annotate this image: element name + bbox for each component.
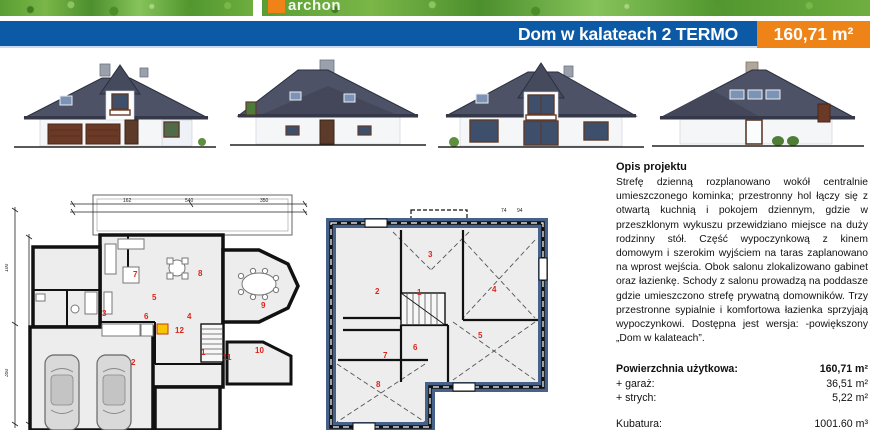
area-badge: 160,71 m² <box>757 21 870 48</box>
room-number: 8 <box>376 380 381 389</box>
floor-plan-attic: 74 94 1 2 3 4 5 6 7 8 <box>313 200 613 430</box>
room-number: 8 <box>198 269 203 278</box>
elevation-front-drawing <box>12 58 218 154</box>
stat-value: 160,71 m² <box>820 362 868 377</box>
room-number: 10 <box>255 346 264 355</box>
area-stats: Powierzchnia użytkowa: 160,71 m² + garaż… <box>616 362 868 431</box>
stat-value: 36,51 m² <box>826 377 868 392</box>
brand-logo-text: archon <box>288 0 341 14</box>
room-number: 7 <box>133 270 138 279</box>
description-body: Strefę dzienną rozplanowano wokół centra… <box>616 176 868 346</box>
elevation-left-side-drawing <box>228 58 428 154</box>
project-description: Opis projektu Strefę dzienną rozplanowan… <box>616 161 868 346</box>
room-number: 1 <box>201 348 206 357</box>
dim-label: 350 <box>260 198 269 204</box>
brand-logo: archon <box>268 0 341 16</box>
floor-plan-ground: 162 540 350 100 350 <box>5 172 315 430</box>
room-number: 4 <box>492 285 497 294</box>
elevation-rear-drawing <box>436 58 646 154</box>
garden-photo-right <box>262 0 870 16</box>
room-number: 5 <box>152 293 157 302</box>
dim-label: 94 <box>517 208 523 214</box>
garden-photo-strip: archon <box>0 0 870 16</box>
dim-label: 350 <box>5 368 10 377</box>
garage-car <box>97 355 131 430</box>
stat-label: + strych: <box>616 391 656 406</box>
kitchen-stove <box>157 324 168 334</box>
room-number: 3 <box>428 250 433 259</box>
room-number: 4 <box>187 312 192 321</box>
dim-label: 74 <box>501 208 507 214</box>
room-number: 1 <box>417 288 422 297</box>
garden-photo-left <box>0 0 253 16</box>
header-bar <box>0 21 870 48</box>
catalog-page: { "palette": { "header_blue": "#0c59a5",… <box>0 0 870 430</box>
dim-label: 100 <box>5 263 10 272</box>
dim-label: 540 <box>185 198 194 204</box>
brand-logo-icon <box>268 0 285 13</box>
elevation-right-side-drawing <box>650 58 866 154</box>
room-number: 7 <box>383 351 388 360</box>
stat-value: 5,22 m² <box>832 391 868 406</box>
dining-table <box>242 273 276 295</box>
stat-row-garage: + garaż: 36,51 m² <box>616 377 868 392</box>
stat-value: 1001.60 m³ <box>814 417 868 431</box>
page-title: Dom w kalateach 2 TERMO <box>518 21 738 48</box>
room-number: 2 <box>375 287 380 296</box>
stat-row-attic: + strych: 5,22 m² <box>616 391 868 406</box>
room-number: 3 <box>102 309 107 318</box>
room-number: 2 <box>131 358 136 367</box>
stat-label: + garaż: <box>616 377 655 392</box>
stat-label: Powierzchnia użytkowa: <box>616 362 738 377</box>
dim-label: 162 <box>123 198 132 204</box>
stairs <box>401 293 445 325</box>
room-number: 11 <box>223 353 232 362</box>
photo-divider <box>253 0 262 16</box>
description-heading: Opis projektu <box>616 161 868 173</box>
room-number: 12 <box>175 326 184 335</box>
garage-car <box>45 355 79 430</box>
room-number: 6 <box>144 312 149 321</box>
stat-row-kubatura: Kubatura: 1001.60 m³ <box>616 417 868 431</box>
room-number: 6 <box>413 343 418 352</box>
room-number: 5 <box>478 331 483 340</box>
stat-row-usable-area: Powierzchnia użytkowa: 160,71 m² <box>616 362 868 377</box>
stat-label: Kubatura: <box>616 417 662 431</box>
room-number: 9 <box>261 301 266 310</box>
